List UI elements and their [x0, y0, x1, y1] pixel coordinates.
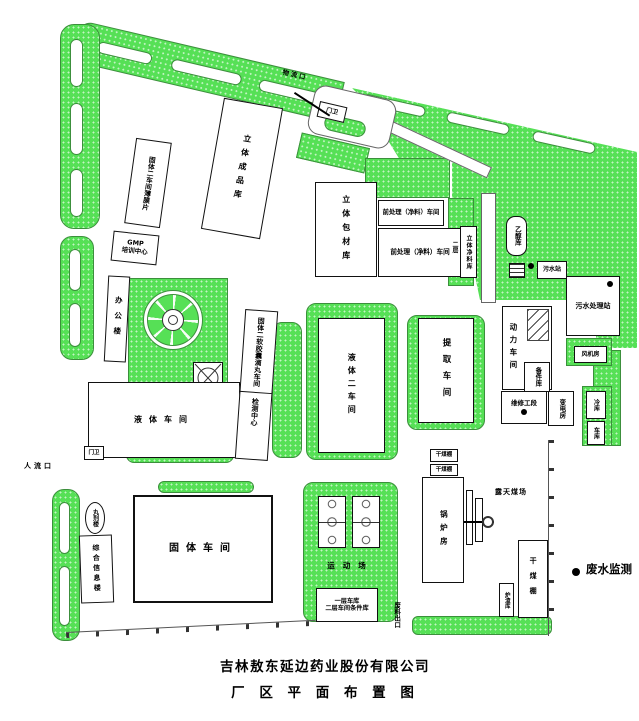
- liquid2-label: 液体二车间: [347, 353, 356, 418]
- building-dry-coal-shed-3: 干煤棚: [518, 540, 548, 618]
- legend-wastewater-label: 废水监测: [586, 563, 632, 577]
- building-solid-workshop: 固体车间: [133, 495, 273, 603]
- coal-shed-3-label: 干煤棚: [529, 557, 537, 602]
- road-island: [59, 566, 70, 626]
- solid2-film-label: 固体二车间薄膜片: [140, 156, 156, 211]
- building-pill: 丸剂楼: [85, 502, 105, 534]
- office-label: 办公楼: [111, 296, 122, 343]
- green-top-band: [70, 20, 344, 123]
- green-west-strip-1: [60, 24, 100, 229]
- people-gate-label: 人流口: [24, 462, 54, 470]
- fan-room-label: 风机房: [581, 351, 599, 358]
- basketball-court-2: [352, 496, 380, 548]
- sports-field-label: 运动场: [303, 562, 398, 571]
- company-title: 吉林敖东延边药业股份有限公司: [160, 660, 490, 676]
- basketball-court-1: [318, 496, 346, 548]
- building-ethanol-warehouse: 乙醇库: [506, 216, 527, 256]
- power-ramp: [527, 309, 549, 341]
- building-extraction-workshop: 提取车间: [418, 318, 474, 423]
- extraction-label: 提取车间: [441, 338, 451, 404]
- garage-l2-label: 二层车间条件库: [325, 605, 368, 612]
- road-island: [70, 39, 83, 87]
- building-two-level-garage: 一层车库 二层车间条件库: [316, 588, 378, 622]
- road-east-vertical: [481, 193, 496, 303]
- boiler-label: 锅炉房: [439, 510, 448, 551]
- packaging-label: 立体包材库: [341, 195, 350, 265]
- building-finished-goods-warehouse: 立体成品库: [201, 98, 283, 239]
- green-strip: [365, 158, 450, 198]
- building-fan-room: 风机房: [574, 346, 607, 363]
- building-slag-warehouse: 炉渣库: [499, 583, 514, 617]
- power-label: 动力车间: [508, 323, 517, 373]
- building-spare-parts: 备件库: [524, 362, 550, 392]
- pretreatment-2-label: 前处理（净料）车间: [390, 249, 449, 257]
- garden-fountain-center: [168, 315, 178, 325]
- gmp-label-line2: 培训中心: [121, 247, 148, 257]
- pretreatment-2-floor-label: 二层: [451, 241, 458, 253]
- road-island: [69, 303, 81, 347]
- building-clean-material-warehouse: 立体净料库: [460, 226, 477, 278]
- building-office: 办公楼: [104, 275, 130, 362]
- building-info: 综合信息楼: [79, 534, 114, 603]
- drawing-title: 厂 区 平 面 布 置 图: [160, 686, 490, 702]
- coal-shed-1-label: 干煤棚: [436, 452, 453, 458]
- coal-shed-2-label: 干煤棚: [436, 467, 453, 473]
- road-island: [69, 249, 81, 291]
- building-solid2-film-workshop: 固体二车间薄膜片: [124, 138, 172, 228]
- ethanol-label: 乙醇库: [513, 226, 521, 246]
- building-west-guard: 门卫: [84, 446, 104, 460]
- green-west-strip-3: [52, 489, 80, 641]
- building-shed: [509, 263, 525, 278]
- site-plan: 门卫 物流口 固体二车间薄膜片 立体成品库 GMP 培训中心 办公楼 立体包材库…: [0, 0, 639, 721]
- divider: [240, 391, 271, 394]
- solid-workshop-label: 固体车间: [169, 543, 237, 555]
- east-fence: [548, 440, 554, 636]
- transformer-label: 变电房: [557, 399, 565, 419]
- testing-center-label: 检测中心: [250, 398, 260, 427]
- building-sewage-treatment-plant: 污水处理站: [566, 276, 620, 336]
- road-island: [59, 502, 70, 554]
- road-island: [170, 58, 243, 86]
- pill-building-label: 丸剂楼: [91, 509, 98, 527]
- spare-parts-label: 备件库: [533, 367, 541, 387]
- finished-goods-label: 立体成品库: [231, 133, 252, 204]
- building-maintenance-section: 维修工段: [501, 391, 547, 424]
- green-strip-softgel-east: [272, 322, 302, 458]
- info-building-label: 综合信息楼: [92, 544, 102, 594]
- building-pretreatment-1: 前处理（净料）车间: [378, 200, 444, 226]
- boiler-platform-1: [466, 490, 473, 545]
- waste-exit-label: 废料出口: [392, 602, 400, 628]
- road-island: [70, 103, 83, 155]
- sewage-station-label: 污水站: [543, 266, 561, 273]
- maintenance-label: 维修工段: [511, 400, 537, 408]
- green-strip-bottom: [412, 616, 552, 635]
- building-boiler-house: 锅炉房: [422, 477, 464, 583]
- building-pretreatment-2: 前处理（净料）车间 二层: [378, 228, 462, 277]
- building-packaging-warehouse: 立体包材库: [315, 182, 377, 277]
- legend-monitoring-dot: [572, 568, 580, 576]
- building-cold-storage: 冷库: [586, 391, 606, 419]
- building-sewage-station: 污水站: [537, 261, 567, 279]
- building-liquid-workshop-2: 液体二车间: [318, 318, 385, 453]
- open-coal-yard-label: 露天煤场: [495, 488, 527, 496]
- building-liquid-workshop: 液体车间: [88, 382, 240, 458]
- building-gmp-training-center: GMP 培训中心: [111, 231, 160, 266]
- road-island: [258, 79, 321, 105]
- slag-label: 炉渣库: [503, 592, 509, 609]
- sewage-plant-label: 污水处理站: [576, 302, 611, 310]
- monitoring-dot-1: [528, 263, 534, 269]
- building-dry-coal-shed-1: 干煤棚: [430, 449, 458, 462]
- garage-l1-label: 一层车库: [335, 598, 360, 605]
- clean-material-label: 立体净料库: [465, 235, 472, 270]
- chimney: [482, 516, 494, 528]
- west-guard-label: 门卫: [88, 450, 99, 456]
- south-fence: [66, 620, 316, 638]
- road-island: [96, 41, 153, 65]
- monitoring-dot-3: [521, 409, 527, 415]
- liquid-workshop-label: 液体车间: [134, 415, 194, 424]
- monitoring-dot-2: [607, 281, 613, 287]
- pretreatment-1-label: 前处理（净料）车间: [383, 209, 440, 216]
- softgel-label: 固体二软胶囊滴丸车间: [252, 317, 265, 387]
- building-garage: 车库: [587, 421, 605, 445]
- garage-label: 车库: [592, 427, 599, 439]
- green-strip-above-solid: [158, 481, 254, 493]
- cold-storage-label: 冷库: [592, 399, 599, 411]
- building-transformer-room: 变电房: [548, 391, 574, 426]
- building-dry-coal-shed-2: 干煤棚: [430, 464, 458, 476]
- green-west-strip-2: [60, 236, 94, 360]
- road-island: [70, 169, 83, 217]
